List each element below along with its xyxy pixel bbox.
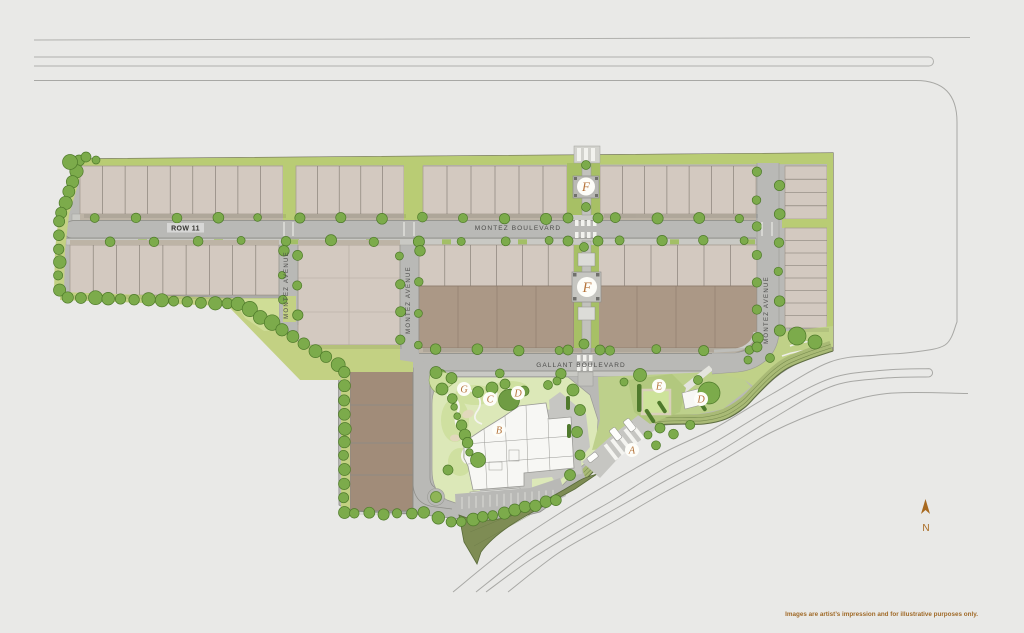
svg-text:F: F: [582, 280, 592, 296]
svg-text:MONTEZ AVENUE: MONTEZ AVENUE: [284, 251, 290, 319]
svg-text:A: A: [628, 446, 636, 457]
svg-text:MONTEZ AVENUE: MONTEZ AVENUE: [764, 276, 770, 344]
svg-text:D: D: [513, 389, 522, 400]
svg-text:F: F: [581, 179, 591, 194]
svg-text:MONTEZ BOULEVARD: MONTEZ BOULEVARD: [475, 225, 561, 232]
svg-text:ROW 11: ROW 11: [171, 226, 200, 233]
svg-text:GALLANT BOULEVARD: GALLANT BOULEVARD: [536, 362, 626, 369]
svg-text:D: D: [696, 395, 705, 406]
svg-text:C: C: [487, 395, 494, 406]
svg-text:Images are artist’s impression: Images are artist’s impression and for i…: [785, 611, 978, 618]
svg-text:G: G: [460, 385, 468, 396]
svg-text:MONTEZ AVENUE: MONTEZ AVENUE: [406, 266, 412, 334]
svg-text:N: N: [922, 523, 929, 534]
svg-text:B: B: [496, 426, 502, 437]
svg-text:E: E: [655, 382, 663, 393]
